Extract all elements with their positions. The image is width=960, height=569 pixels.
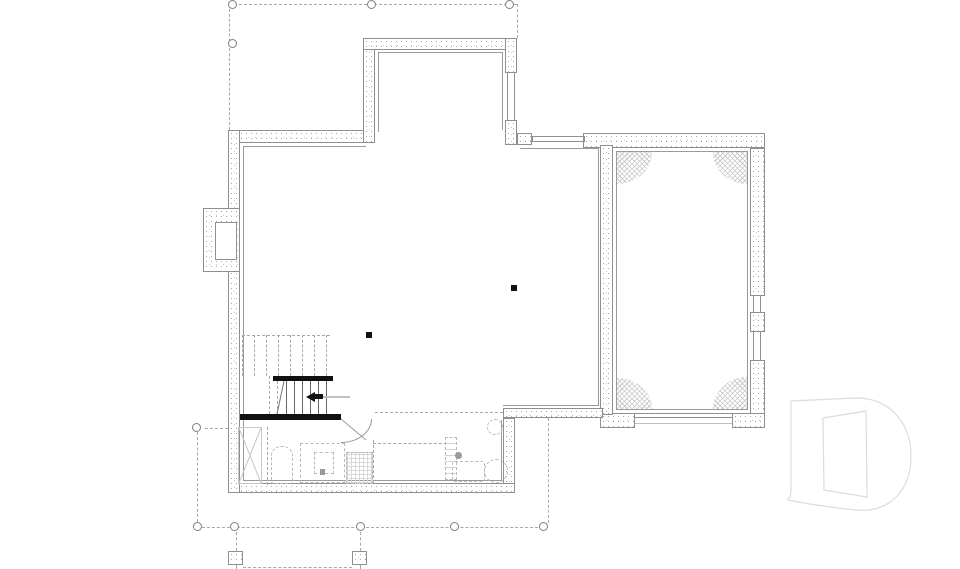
brand-d-watermark-icon — [786, 394, 916, 520]
door-leaf-line — [341, 419, 366, 440]
logo-inner-path — [823, 411, 867, 497]
floor-plan-canvas — [0, 0, 960, 569]
stair-break-line — [277, 381, 284, 414]
logo-outer-path — [788, 398, 911, 510]
